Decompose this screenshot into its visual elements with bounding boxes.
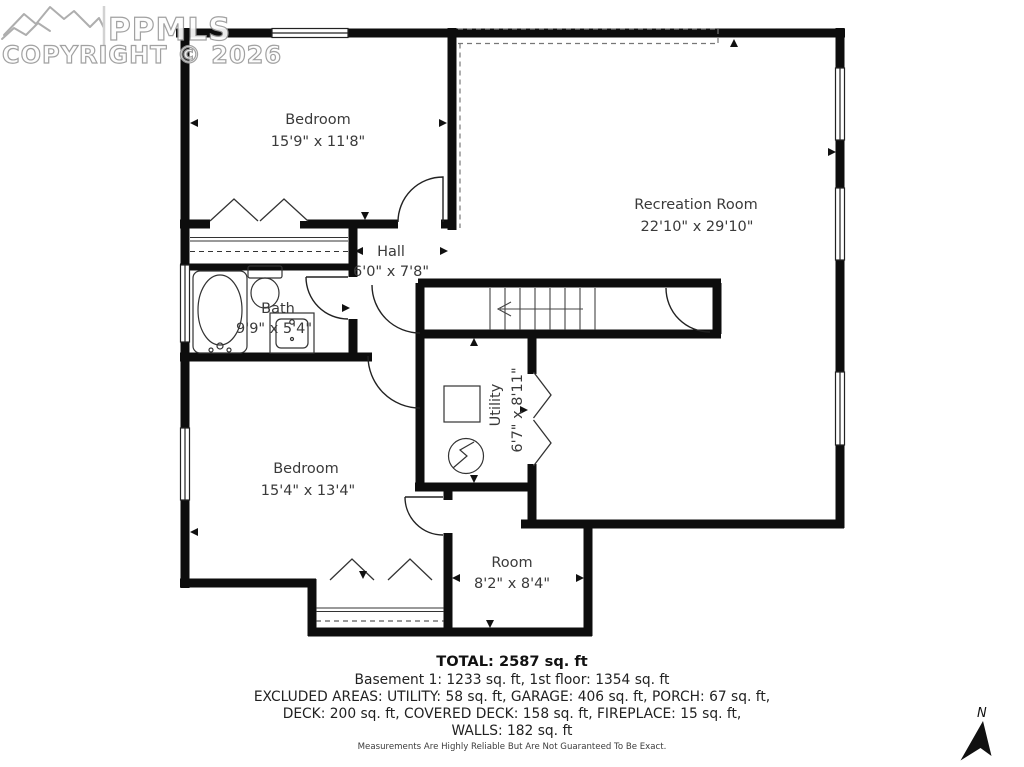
summary-line-3: DECK: 200 sq. ft, COVERED DECK: 158 sq. … xyxy=(283,706,742,722)
door-stairs-left xyxy=(372,285,420,333)
door-stairs-right xyxy=(666,288,710,332)
north-needle xyxy=(961,721,992,761)
room-dims-bedroom1: 15'9" x 11'8" xyxy=(271,134,365,150)
room-dims-utility: 6'7" x 8'11" xyxy=(510,367,526,452)
north-label: N xyxy=(977,706,987,721)
summary-line-4: WALLS: 182 sq. ft xyxy=(452,723,574,739)
closet-bedroom2-shelf xyxy=(316,608,444,612)
room-dims-hall: 6'0" x 7'8" xyxy=(353,264,429,280)
room-label-recreation: Recreation Room xyxy=(634,197,757,213)
window-rec-right-1 xyxy=(836,68,845,140)
room-dims-room: 8'2" x 8'4" xyxy=(474,576,550,592)
room-label-utility: Utility xyxy=(488,383,504,426)
floor-plan-canvas: Bedroom 15'9" x 11'8" Recreation Room 22… xyxy=(0,0,1024,767)
room-label-room: Room xyxy=(491,555,532,571)
north-arrow-icon: N xyxy=(961,706,992,761)
watermark-copyright: COPYRIGHT © 2026 xyxy=(2,41,282,69)
room-label-bedroom2: Bedroom xyxy=(273,461,339,477)
summary-line-2: EXCLUDED AREAS: UTILITY: 58 sq. ft, GARA… xyxy=(254,689,770,705)
window-rec-right-2 xyxy=(836,188,845,260)
stair-direction-arrow xyxy=(498,302,583,316)
utility-fixtures xyxy=(444,386,484,474)
closet-bedroom1-shelf xyxy=(190,238,348,242)
summary-line-1: Basement 1: 1233 sq. ft, 1st floor: 1354… xyxy=(355,672,671,688)
room-label-bath: Bath xyxy=(261,301,295,317)
door-bedroom2 xyxy=(368,356,420,408)
summary-total: TOTAL: 2587 sq. ft xyxy=(436,653,587,670)
room-dims-recreation: 22'10" x 29'10" xyxy=(641,219,754,235)
room-label-bedroom1: Bedroom xyxy=(285,112,351,128)
room-dims-bedroom2: 15'4" x 13'4" xyxy=(261,483,355,499)
staircase xyxy=(490,288,595,330)
window-bath-left xyxy=(181,265,190,342)
bathtub-icon xyxy=(193,271,247,353)
furnace-icon xyxy=(444,386,480,422)
room-label-hall: Hall xyxy=(377,244,405,260)
window-rec-right-3 xyxy=(836,372,845,445)
bath-fixtures xyxy=(193,266,314,353)
bifold-closet-bedroom2 xyxy=(330,559,432,580)
bifold-utility xyxy=(534,372,552,466)
room-dims-bath: 9'9" x 5'4" xyxy=(236,321,312,337)
bifold-closet-bedroom1 xyxy=(210,199,308,221)
window-bedroom2-left xyxy=(181,428,190,500)
area-summary: TOTAL: 2587 sq. ft Basement 1: 1233 sq. … xyxy=(254,653,770,752)
floor-plan-page: Bedroom 15'9" x 11'8" Recreation Room 22… xyxy=(0,0,1024,767)
water-heater-icon xyxy=(449,439,484,474)
window-bedroom1-top xyxy=(272,29,348,38)
mountain-range-icon xyxy=(2,7,104,39)
summary-disclaimer: Measurements Are Highly Reliable But Are… xyxy=(358,742,667,752)
door-bedroom1 xyxy=(398,177,443,222)
door-room xyxy=(405,497,443,535)
